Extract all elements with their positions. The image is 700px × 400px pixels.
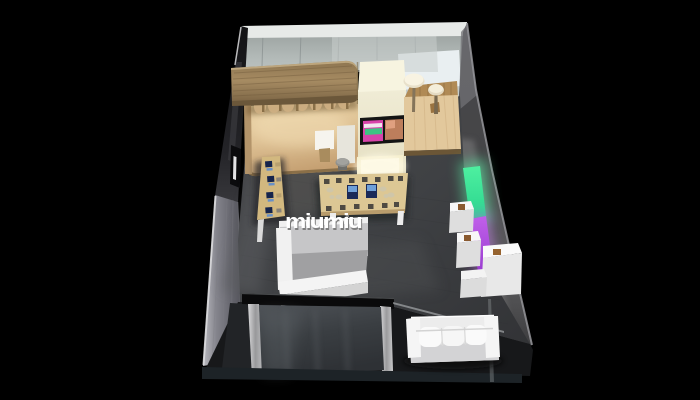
svg-text:miumiu: miumiu [285,210,362,233]
